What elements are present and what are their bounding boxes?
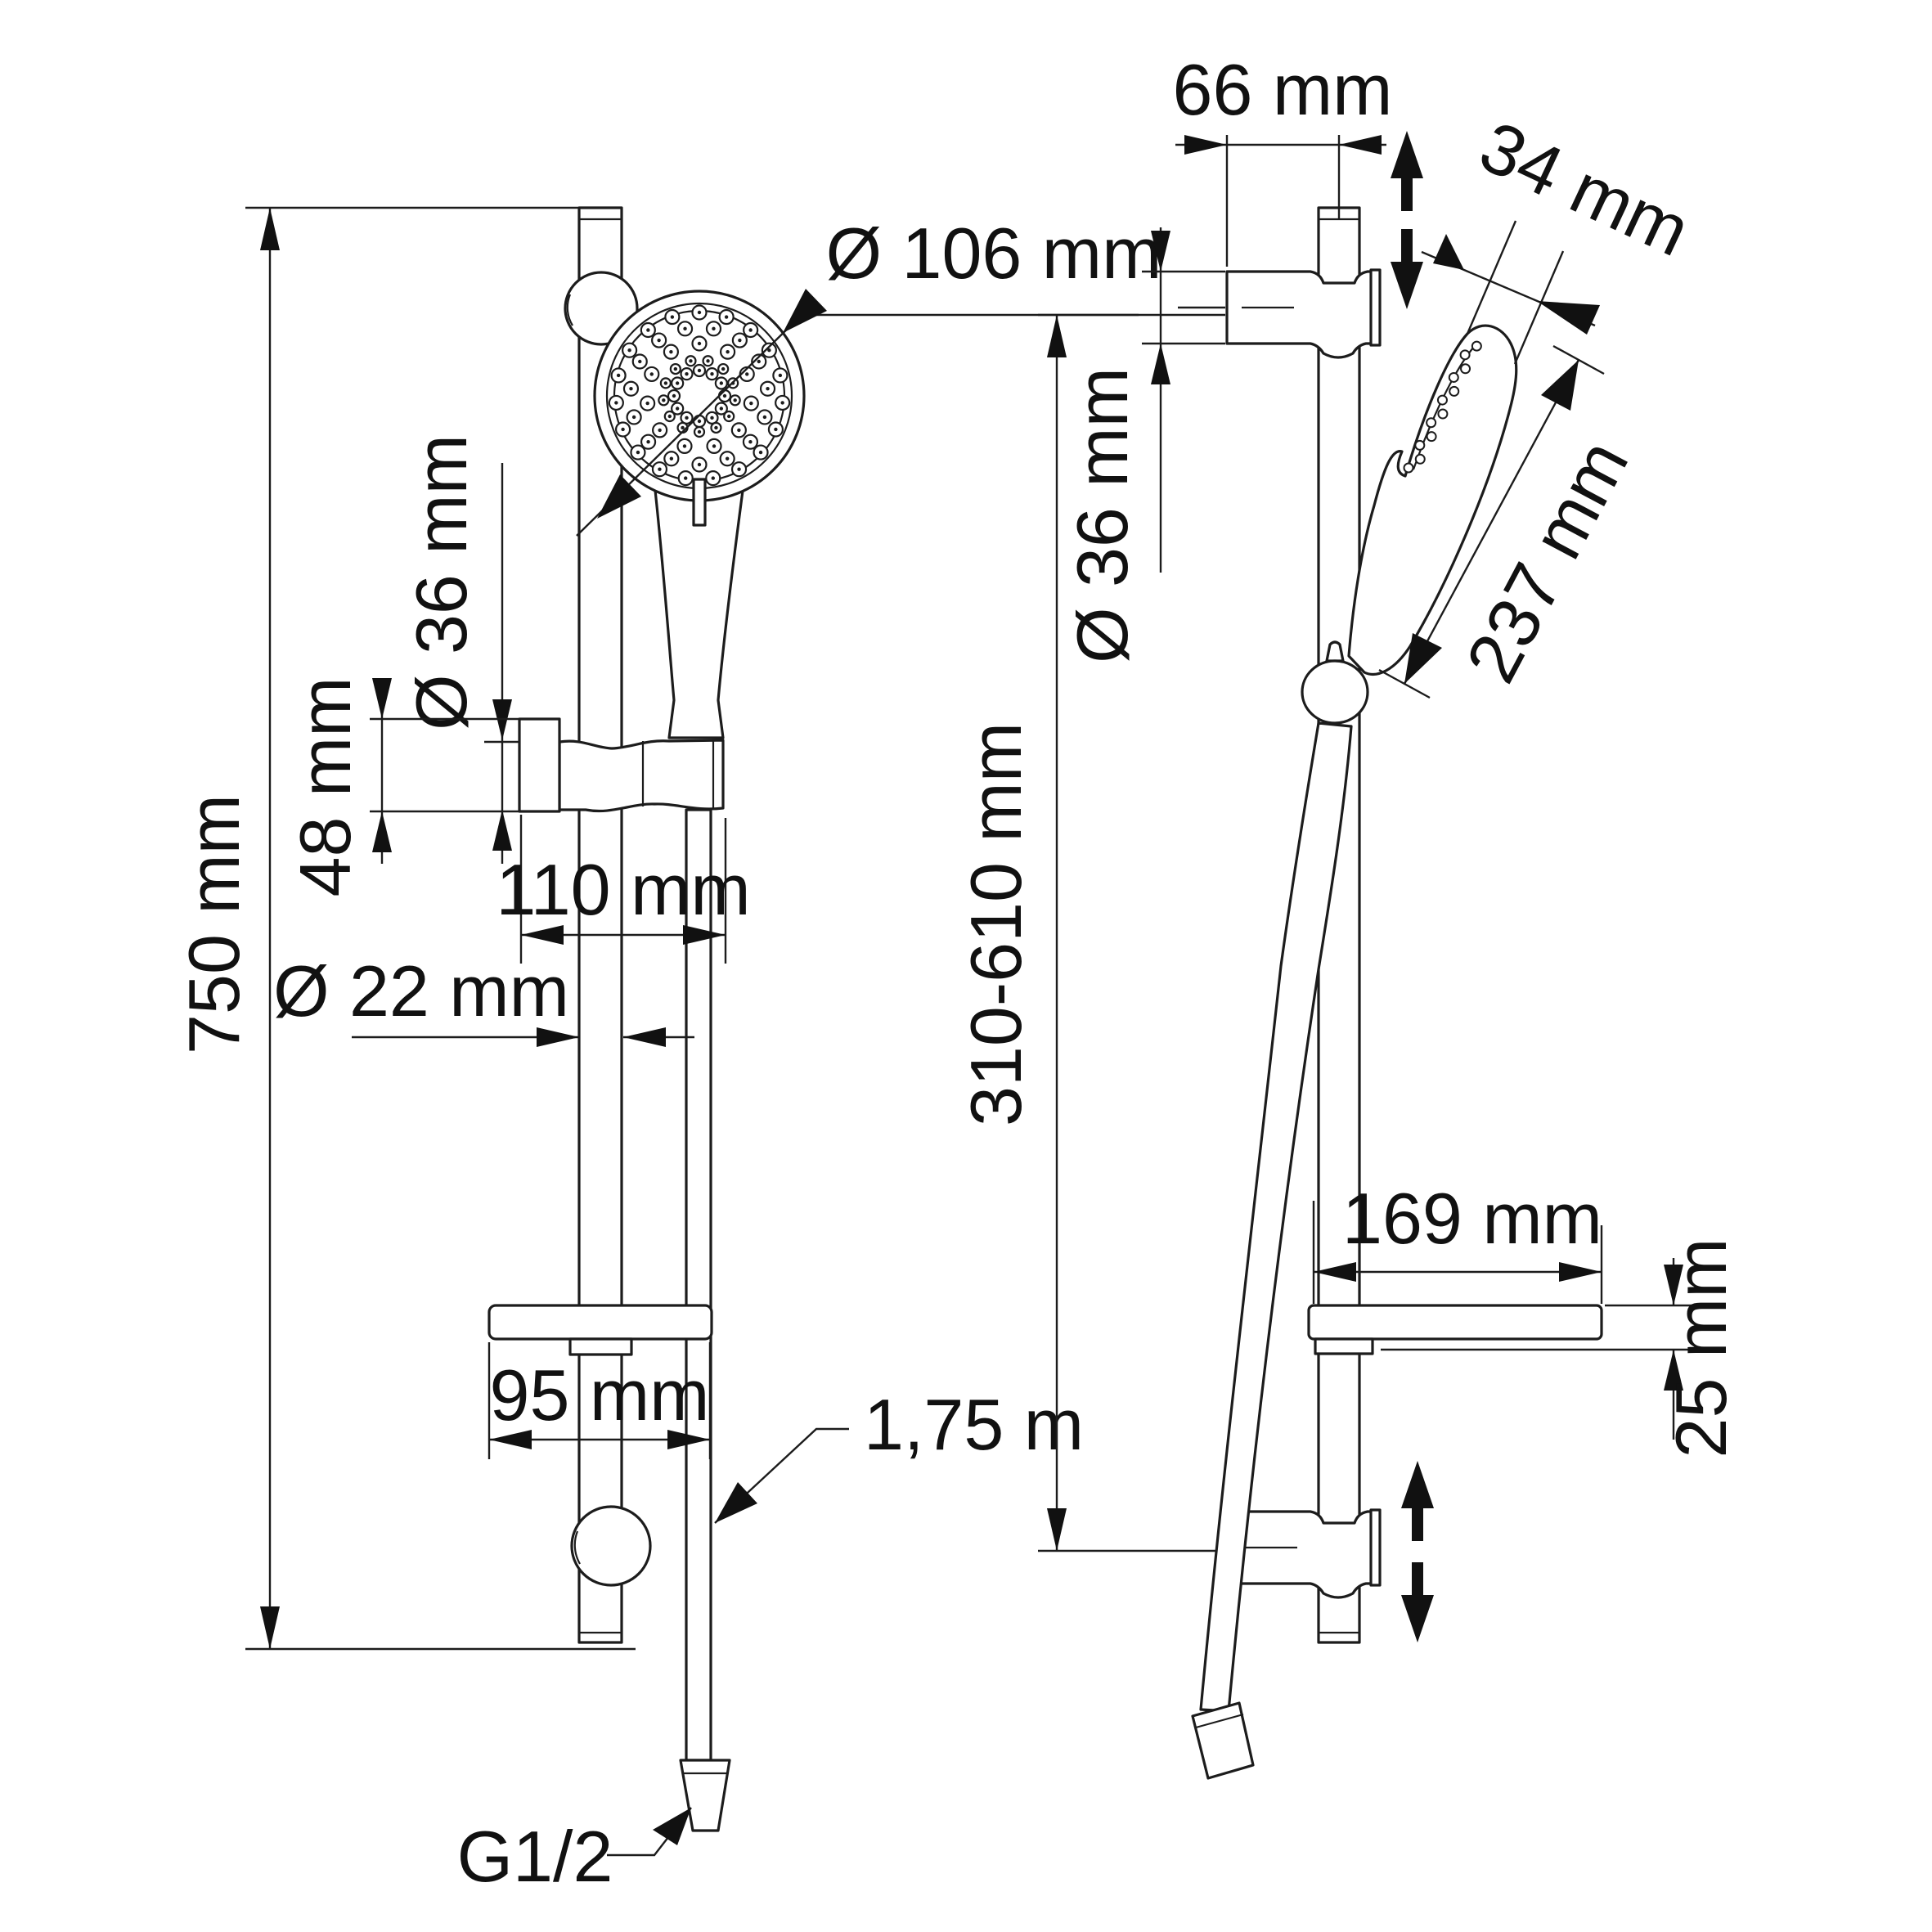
label-rail-diameter: Ø 22 mm [273, 950, 569, 1031]
label-holder-height: 48 mm [285, 677, 366, 897]
soap-dish-front [489, 1305, 712, 1355]
label-bracket-depth: 66 mm [1173, 49, 1393, 130]
dish-body-side [1309, 1305, 1602, 1339]
label-thread: G1/2 [457, 1816, 613, 1897]
hose-tube [686, 810, 711, 1760]
side-view: 66 mm Ø 36 mm 310-610 mm 34 mm [955, 49, 1741, 1778]
label-holder-width: 110 mm [496, 849, 750, 930]
top-wall-bracket-side [1227, 270, 1380, 357]
label-hose-length: 1,75 m [864, 1384, 1084, 1465]
glider-knob [1302, 661, 1368, 723]
label-head-diameter: Ø 106 mm [826, 213, 1162, 294]
callout-thread: G1/2 [457, 1808, 691, 1897]
hand-shower-front [595, 291, 804, 738]
label-head-thickness: 34 mm [1468, 106, 1702, 272]
top-bracket-body [1227, 272, 1373, 357]
glider-pin [1327, 642, 1343, 661]
soap-dish-side [1309, 1305, 1602, 1354]
adjust-arrows-top [1391, 131, 1423, 309]
adjust-arrows-bottom [1401, 1461, 1434, 1642]
label-bracket-diameter: Ø 36 mm [1062, 367, 1143, 663]
label-dish-thickness: 25 mm [1660, 1238, 1741, 1458]
holder-body [559, 740, 723, 811]
mode-lever [694, 479, 705, 525]
dim-holder-width-110: 110 mm [496, 815, 750, 964]
technical-drawing: 750 mm Ø 106 mm Ø 36 mm 48 mm [0, 0, 1932, 1932]
dish-body [489, 1305, 712, 1339]
callout-hose-length: 1,75 m [715, 1384, 1084, 1523]
holder-wall-plate [519, 719, 559, 811]
dish-clip-side [1315, 1339, 1373, 1354]
bottom-bracket-body [1230, 1512, 1373, 1597]
dim-holder-diameter-36: Ø 36 mm [401, 434, 520, 864]
label-dish-depth: 169 mm [1342, 1178, 1602, 1259]
dim-head-thickness-34: 34 mm [1422, 106, 1702, 364]
bottom-wall-bracket-side [1230, 1510, 1380, 1597]
top-bracket-cap [1371, 270, 1380, 345]
label-bracket-span: 310-610 mm [955, 722, 1036, 1126]
bottom-wall-bracket-front [572, 1507, 650, 1585]
hose-cone-fitting [681, 1760, 730, 1831]
dish-clip [570, 1339, 631, 1355]
label-holder-diameter: Ø 36 mm [401, 434, 482, 730]
bottom-bracket-cap [1371, 1510, 1380, 1585]
dim-rail-diameter-22: Ø 22 mm [273, 950, 694, 1047]
label-dish-width: 95 mm [490, 1355, 710, 1436]
shower-set-diagram: 750 mm Ø 106 mm Ø 36 mm 48 mm [0, 0, 1932, 1932]
hose-cone-side [1193, 1703, 1253, 1778]
label-rail-height: 750 mm [173, 794, 254, 1054]
